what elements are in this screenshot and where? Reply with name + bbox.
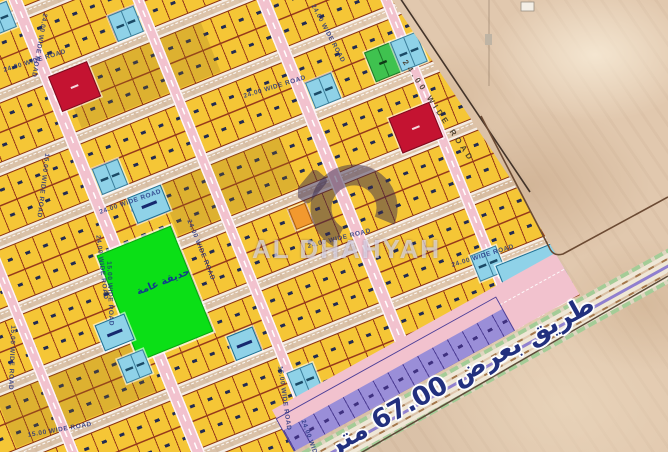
watermark-text: AL DHAHYAH xyxy=(252,234,452,265)
site-plan-map: حديقة عامة xyxy=(0,0,668,452)
road-label: 15.00 WIDE ROAD xyxy=(6,325,15,390)
